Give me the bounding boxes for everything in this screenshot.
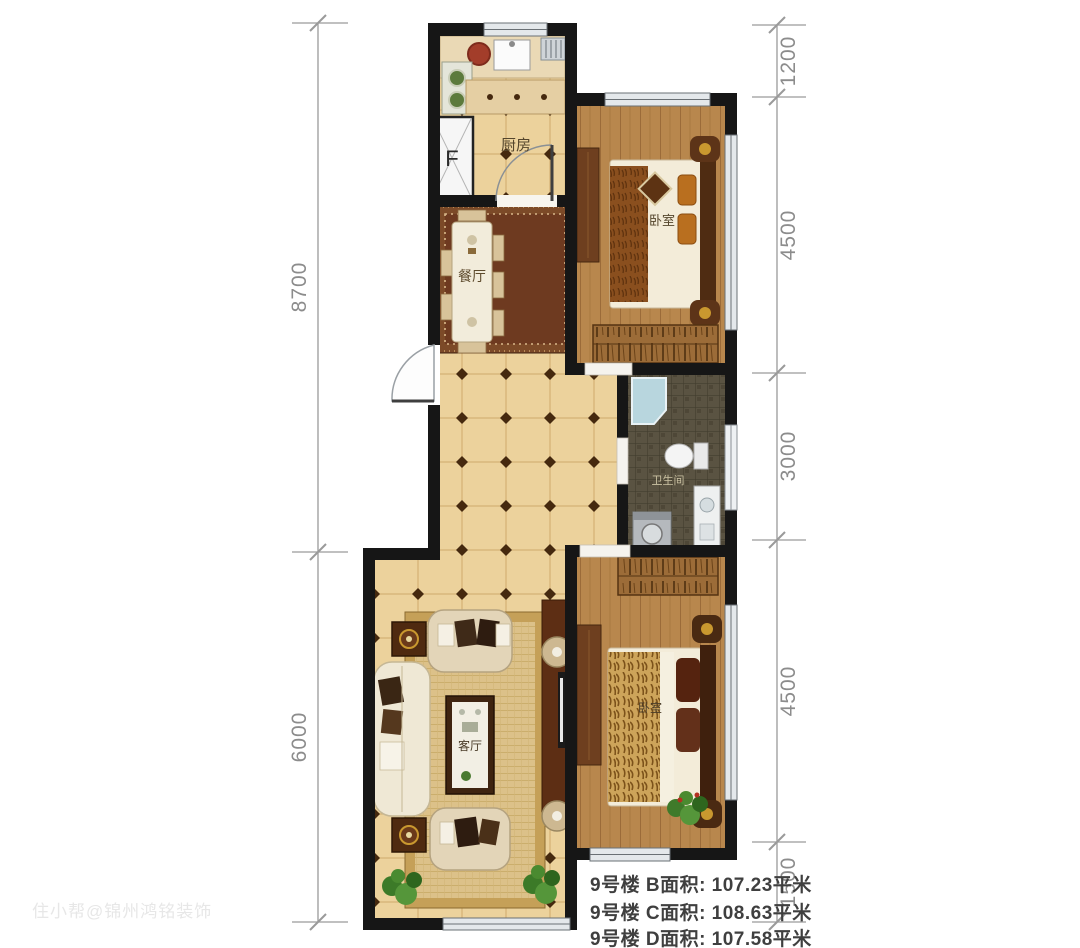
washing-machine — [633, 512, 671, 550]
floorplan-page: F — [0, 0, 1080, 948]
dim-right-0: 1200 — [777, 36, 800, 87]
flue-label: F — [445, 146, 458, 171]
living-window — [443, 918, 570, 930]
dimension-labels-right: 1200 4500 3000 4500 1500 — [777, 36, 800, 908]
dining-chair — [458, 342, 486, 353]
watermark: 住小帮@锦州鸿铭装饰 — [32, 902, 212, 921]
dining-chair — [493, 235, 504, 261]
sofa-left — [374, 662, 430, 816]
pillow — [676, 658, 700, 702]
entry-door — [392, 345, 440, 405]
shower — [632, 378, 666, 424]
bedroom-bottom-label: 卧室 — [638, 700, 662, 715]
pillow — [676, 708, 700, 752]
dim-left-0: 8700 — [288, 262, 311, 313]
end-table — [392, 622, 426, 656]
floor-plan: F — [0, 0, 1080, 948]
dining-chair — [493, 310, 504, 336]
passage-floor — [440, 548, 565, 562]
bedroom-top-side-window — [725, 135, 737, 330]
wardrobe — [593, 325, 718, 363]
dim-right-1: 4500 — [777, 210, 800, 261]
area-row-b: 9号楼 B面积: 107.23平米 — [590, 873, 812, 896]
kitchen-faucet — [509, 41, 515, 47]
pillow — [678, 214, 696, 244]
area-table: 9号楼 B面积: 107.23平米 9号楼 C面积: 108.63平米 9号楼 … — [590, 873, 812, 948]
dining-label: 餐厅 — [458, 268, 486, 284]
closet — [618, 557, 718, 595]
kitchen-label: 厨房 — [501, 137, 531, 154]
bathroom-door — [617, 438, 628, 484]
dim-left-1: 6000 — [288, 712, 311, 763]
living-label: 客厅 — [458, 738, 482, 753]
hallway-floor — [436, 375, 617, 548]
bathroom-label: 卫生间 — [652, 473, 685, 487]
dim-right-3: 4500 — [777, 666, 800, 717]
dim-right-2: 3000 — [777, 431, 800, 482]
bed-blanket — [608, 652, 660, 802]
area-row-d: 9号楼 D面积: 107.58平米 — [590, 927, 812, 948]
bedroom-bottom-door — [580, 545, 630, 557]
bedroom-top-label: 卧室 — [649, 213, 675, 228]
sofa-bottom — [430, 808, 510, 870]
dining-chair — [493, 272, 504, 298]
bedroom-top-door — [585, 363, 632, 375]
sofa-top — [428, 610, 512, 672]
kitchen-window — [484, 23, 547, 36]
end-table — [392, 818, 426, 852]
dining-room — [436, 205, 574, 353]
area-row-c: 9号楼 C面积: 108.63平米 — [590, 901, 812, 924]
toilet — [665, 443, 708, 469]
bathroom-window — [725, 425, 737, 510]
headboard — [700, 645, 716, 810]
headboard — [700, 152, 716, 316]
dimension-lines-left — [292, 15, 348, 930]
dining-chair — [441, 250, 452, 276]
bedroom-bottom-window — [590, 848, 670, 861]
dining-chair — [458, 210, 486, 221]
sink-counter — [694, 486, 720, 546]
dining-chair — [441, 294, 452, 320]
bedroom-bottom-side-window — [725, 605, 737, 800]
pillow — [678, 175, 696, 205]
bedroom-top-window — [605, 93, 710, 106]
bedroom-top — [577, 136, 720, 363]
dimension-labels-left: 8700 6000 — [288, 262, 311, 763]
